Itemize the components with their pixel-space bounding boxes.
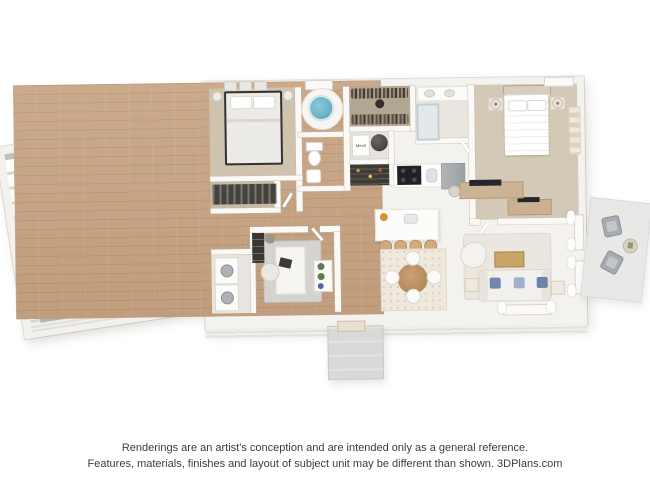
- office-desk: [275, 246, 306, 294]
- disclaimer-line-2: Features, materials, finishes and layout…: [0, 456, 650, 472]
- side-table: [551, 281, 565, 295]
- armchair: [460, 242, 486, 268]
- wall: [410, 86, 416, 131]
- potted-plant: [318, 273, 325, 280]
- patio-side-table: [622, 238, 639, 255]
- disclaimer: Renderings are an artist's conception an…: [0, 440, 650, 472]
- sofa-pillow: [537, 277, 548, 288]
- wall: [298, 186, 344, 192]
- blue-pot: [318, 283, 324, 289]
- mech-unit: Mech: [352, 134, 370, 156]
- curtain: [567, 211, 575, 225]
- range-stove: [397, 166, 421, 185]
- sofa-arm: [480, 271, 488, 301]
- curtain: [547, 301, 555, 313]
- living-room-window: [503, 304, 551, 316]
- curtain: [498, 301, 506, 313]
- dining-chair: [385, 270, 400, 285]
- floor-plan-render: Mech: [6, 70, 644, 395]
- front-door: [337, 320, 365, 331]
- patio: [580, 197, 650, 303]
- hanging-plant: [265, 234, 275, 244]
- kitchen-sink: [426, 168, 437, 182]
- curtain: [567, 239, 575, 251]
- curtain: [567, 257, 575, 269]
- roman-shade-window: [568, 106, 581, 154]
- living-room-window: [574, 214, 585, 250]
- dining-chair: [427, 269, 442, 284]
- disclaimer-line-1: Renderings are an artist's conception an…: [0, 440, 650, 456]
- clothes-rod: [351, 88, 408, 99]
- toilet-bowl: [308, 150, 321, 166]
- mech-label: Mech: [356, 143, 366, 148]
- wall-art: [254, 81, 267, 91]
- sofa-pillow: [490, 278, 501, 289]
- wall: [470, 219, 480, 225]
- sofa-pillow: [514, 277, 525, 288]
- floor-lamp: [448, 185, 460, 197]
- wall-sconce: [283, 90, 293, 100]
- floor-plan-page: Mech: [0, 0, 650, 488]
- living-room-tv: [469, 180, 501, 186]
- pillow: [230, 96, 252, 109]
- wall: [334, 232, 341, 312]
- washer: [214, 257, 238, 284]
- wall: [211, 249, 251, 255]
- pillow: [527, 100, 546, 111]
- dryer: [215, 284, 239, 311]
- island-sink: [404, 214, 418, 224]
- clothes-rod: [351, 114, 408, 125]
- bookshelf: [252, 233, 264, 263]
- patio-chair: [599, 249, 624, 275]
- pillow: [508, 100, 527, 111]
- wall-sconce: [212, 91, 222, 101]
- master-window: [544, 77, 574, 87]
- wall-art: [224, 81, 237, 91]
- curtain: [568, 285, 576, 297]
- potted-plant: [317, 263, 324, 270]
- wall-art: [239, 81, 252, 91]
- wall: [298, 132, 344, 138]
- side-table: [465, 278, 479, 292]
- front-porch: [327, 325, 384, 380]
- pantry-shelving: [350, 164, 389, 186]
- sofa-pillow: [526, 277, 537, 288]
- patio-chair: [601, 215, 623, 238]
- closet-shelving: [212, 184, 276, 205]
- pillow: [253, 96, 275, 109]
- sofa-pillow: [502, 277, 513, 288]
- table-lamp: [490, 99, 501, 110]
- fruit-bowl: [380, 213, 388, 221]
- pedestal-sink: [306, 169, 321, 183]
- walk-in-shower: [416, 103, 440, 140]
- wall: [211, 208, 281, 214]
- coffee-table: [494, 251, 524, 267]
- wall: [350, 126, 416, 132]
- sofa: [479, 269, 551, 302]
- closet-basket: [375, 99, 384, 108]
